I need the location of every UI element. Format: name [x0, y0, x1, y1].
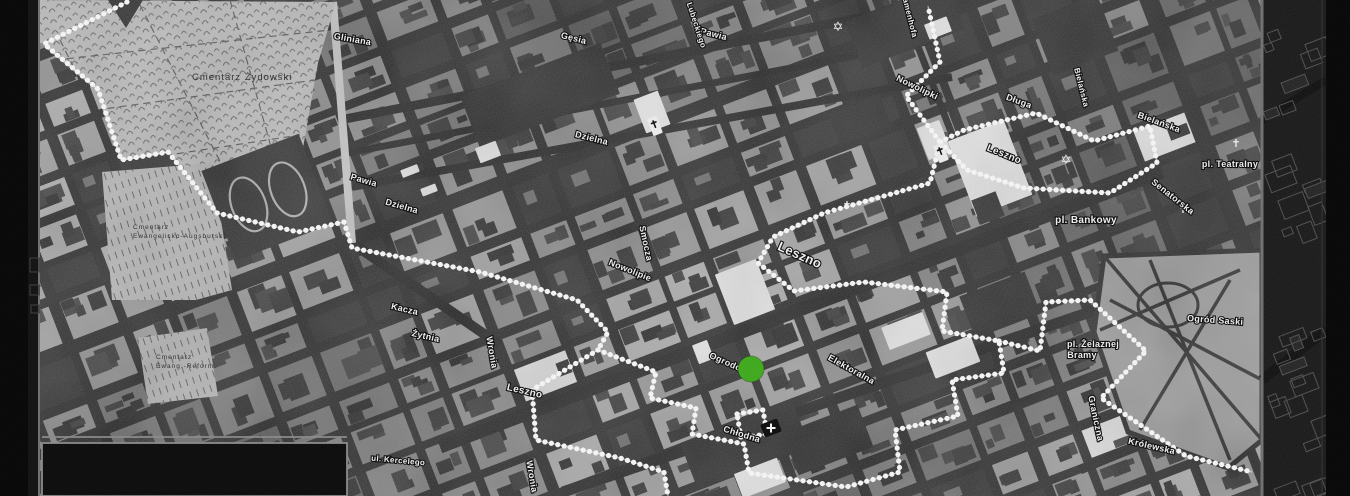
place-label: Bramy [1067, 350, 1097, 360]
cross-icon: ✝ [842, 200, 851, 212]
cemetery-label: Cmentarz [156, 354, 192, 361]
historical-map-viewport[interactable]: ✡✡✝✝✝GlinianaGęsiaPawiaLubeckiegoZamenho… [0, 0, 1350, 496]
star-of-david-icon: ✡ [1061, 152, 1072, 167]
map-canvas[interactable]: ✡✡✝✝✝GlinianaGęsiaPawiaLubeckiegoZamenho… [0, 0, 1350, 496]
location-marker[interactable] [738, 356, 764, 382]
cross-icon: ✝ [1231, 138, 1240, 150]
cemetery-label: Cmentarz [133, 224, 169, 231]
star-of-david-icon: ✡ [833, 19, 844, 34]
cemetery-label: Cmentarz Żydowski [192, 72, 292, 83]
adjacent-sheet-dark [42, 443, 347, 496]
cemetery-label: Ewang.-Reform. [156, 363, 217, 370]
place-label: pl. Teatralny [1202, 159, 1258, 169]
right-margin-sheet [1262, 0, 1350, 496]
right-black-band [1326, 0, 1350, 496]
place-label: pl. Żelaznej [1067, 339, 1119, 349]
left-black-band [0, 0, 28, 496]
cemetery-label: Ewangelicko-Augsburski [133, 233, 226, 240]
place-label: pl. Bankowy [1055, 215, 1117, 226]
